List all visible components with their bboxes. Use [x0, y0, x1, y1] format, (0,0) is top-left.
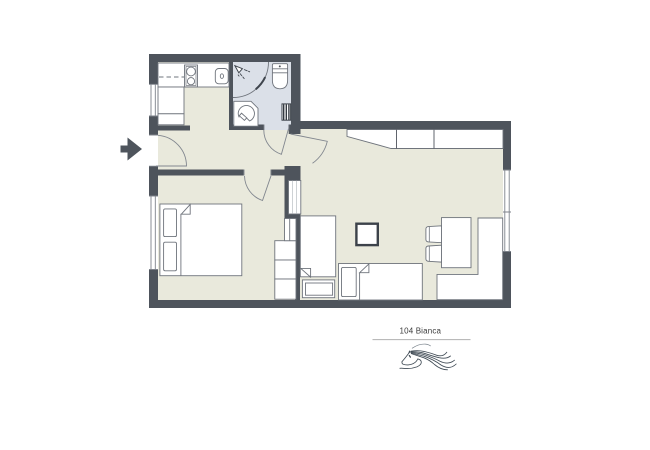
svg-text:104 Bianca: 104 Bianca — [400, 327, 442, 336]
